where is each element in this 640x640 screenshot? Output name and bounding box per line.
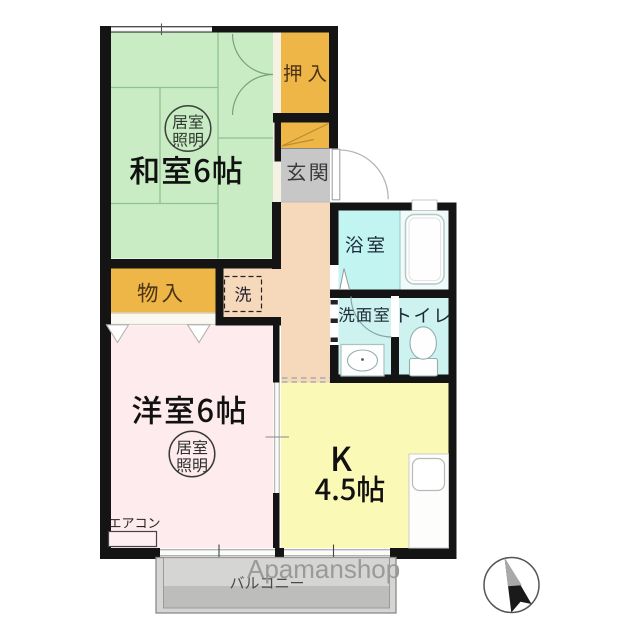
- svg-text:Apamanshop: Apamanshop: [247, 554, 400, 584]
